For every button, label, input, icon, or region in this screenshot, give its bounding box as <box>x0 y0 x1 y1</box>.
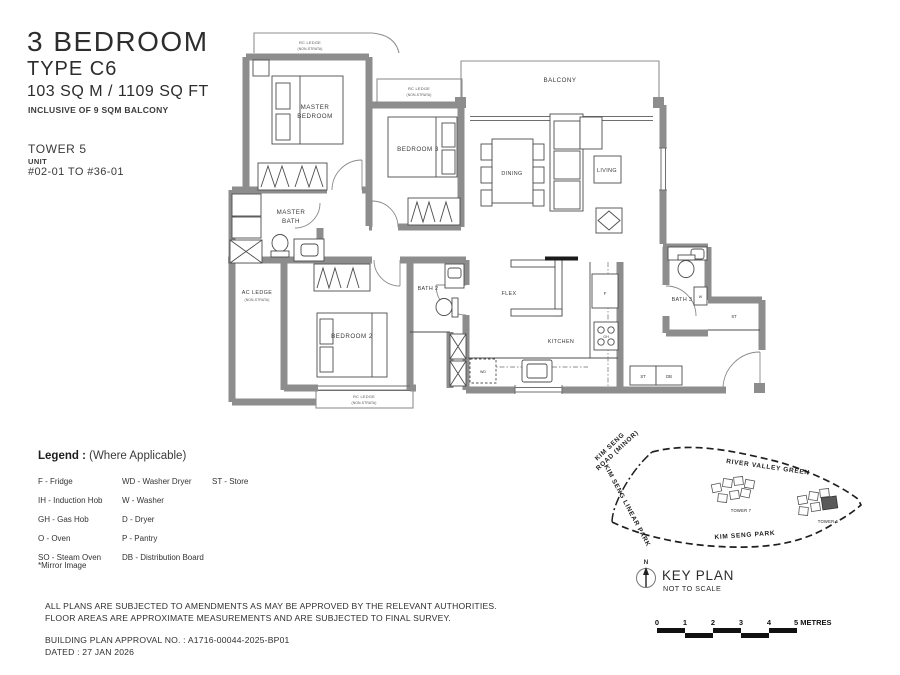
bedroom2-furniture <box>314 264 387 377</box>
legend-item: W - Washer <box>122 491 204 510</box>
living-label: LIVING <box>597 168 617 174</box>
balcony-label: BALCONY <box>543 77 576 84</box>
legend-column-3: ST - Store <box>212 472 248 491</box>
keyplan-park-label: KIM SENG PARK <box>714 530 775 541</box>
highlighted-tower5-block <box>821 496 838 510</box>
scale-unit-label: 5 METRES <box>794 618 832 627</box>
legend-title-note: (Where Applicable) <box>89 450 186 462</box>
disclaimer-line-1: ALL PLANS ARE SUBJECTED TO AMENDMENTS AS… <box>45 601 497 611</box>
tower5-cluster <box>797 488 837 515</box>
ac-ledge-label: AC LEDGE <box>242 290 272 296</box>
scale-tick-0: 0 <box>655 618 659 627</box>
rc-ledge-sublabel: (NON-STRATA) <box>407 93 432 97</box>
rc-ledge-top: RC LEDGE (NON-STRATA) <box>254 33 399 53</box>
ac-ledge-sublabel: (NON-STRATA) <box>245 298 270 302</box>
rc-ledge-label: RC LEDGE <box>299 40 321 45</box>
disclaimer-line-2: FLOOR AREAS ARE APPROXIMATE MEASUREMENTS… <box>45 613 451 623</box>
keyplan-river-valley-label: RIVER VALLEY GREEN <box>726 458 810 477</box>
bedroom2-label: BEDROOM 2 <box>331 333 373 340</box>
kitchen-fixtures <box>468 262 618 387</box>
kitchen-label: KITCHEN <box>548 339 574 345</box>
rc-ledge-sublabel: (NON-STRATA) <box>352 401 377 405</box>
scale-tick-4: 4 <box>767 618 772 627</box>
legend-item: ST - Store <box>212 472 248 491</box>
master-bedroom-furniture <box>253 60 343 190</box>
bath3-fixtures <box>668 247 760 330</box>
scale-tick-1: 1 <box>683 618 687 627</box>
scale-tick-2: 2 <box>711 618 715 627</box>
compass: N <box>637 559 656 588</box>
flex-furniture <box>511 257 578 317</box>
bedroom3-label: BEDROOM 3 <box>397 146 439 153</box>
bedroom3-furniture <box>388 117 460 225</box>
master-bath-label2: BATH <box>282 218 300 225</box>
master-bedroom-label: MASTER <box>301 104 330 111</box>
legend-item: GH - Gas Hob <box>38 510 102 529</box>
rc-ledge-bottom: RC LEDGE (NON-STRATA) <box>316 390 413 408</box>
balcony-structure <box>455 61 664 123</box>
db-tag: DB <box>666 374 672 379</box>
tower5-label: TOWER 5 <box>818 519 839 524</box>
rc-ledge-sublabel: (NON-STRATA) <box>298 47 323 51</box>
gas-hob-tag: GH <box>603 335 609 339</box>
tower7-cluster <box>711 476 754 502</box>
bath3-label: BATH 3 <box>672 297 693 303</box>
legend-item: D - Dryer <box>122 510 204 529</box>
bath2-label: BATH 2 <box>418 286 439 292</box>
store-tag: ST <box>731 314 737 319</box>
entry-corner-post <box>754 383 765 393</box>
legend-column-1: F - Fridge IH - Induction Hob GH - Gas H… <box>38 472 102 567</box>
legend-item: DB - Distribution Board <box>122 548 204 567</box>
rc-ledge-label: RC LEDGE <box>353 394 375 399</box>
legend-item: F - Fridge <box>38 472 102 491</box>
tower7-label: TOWER 7 <box>731 508 752 513</box>
keyplan-subtitle: NOT TO SCALE <box>663 584 721 593</box>
legend-item: IH - Induction Hob <box>38 491 102 510</box>
floorplan-drawing: RC LEDGE (NON-STRATA) RC LEDGE (NON-STRA… <box>0 0 900 675</box>
flex-label: FLEX <box>501 291 516 297</box>
master-bath-label: MASTER <box>277 209 306 216</box>
master-bedroom-label2: BEDROOM <box>297 113 332 120</box>
fridge-tag: F <box>604 291 607 296</box>
compass-north-label: N <box>644 559 649 566</box>
legend-title-word: Legend : <box>38 450 86 462</box>
keyplan-linear-park-label: KIM SENG LINEAR PARK <box>602 464 651 548</box>
approval-number: BUILDING PLAN APPROVAL NO. : A1716-00044… <box>45 635 290 645</box>
mirror-image-note: *Mirror Image <box>38 561 86 570</box>
master-bath-fixtures <box>230 194 324 263</box>
legend-item: WD - Washer Dryer <box>122 472 204 491</box>
legend-item: O - Oven <box>38 529 102 548</box>
approval-date: DATED : 27 JAN 2026 <box>45 647 134 657</box>
legend-item: P - Pantry <box>122 529 204 548</box>
store-cabinet-tag: ST <box>640 374 646 379</box>
dining-label: DINING <box>501 171 522 177</box>
legend-title: Legend : (Where Applicable) <box>38 450 186 462</box>
legend-column-2: WD - Washer Dryer W - Washer D - Dryer P… <box>122 472 204 567</box>
keyplan-title: KEY PLAN <box>662 568 734 583</box>
rc-ledge-label: RC LEDGE <box>408 86 430 91</box>
floorplan-page: 3 BEDROOM TYPE C6 103 SQ M / 1109 SQ FT … <box>0 0 900 675</box>
scale-tick-3: 3 <box>739 618 743 627</box>
washer-tag: W <box>699 295 703 299</box>
key-plan: KIM SENG ROAD (MINOR) KIM SENG LINEAR PA… <box>590 423 861 548</box>
rc-ledge-bedroom3: RC LEDGE (NON-STRATA) <box>377 79 462 105</box>
scale-bar: 0 1 2 3 4 5 METRES <box>655 618 832 638</box>
bath2-fixtures <box>410 264 466 386</box>
washer-dryer-tag: WD <box>480 370 486 374</box>
st-db-cabinets <box>630 366 682 385</box>
